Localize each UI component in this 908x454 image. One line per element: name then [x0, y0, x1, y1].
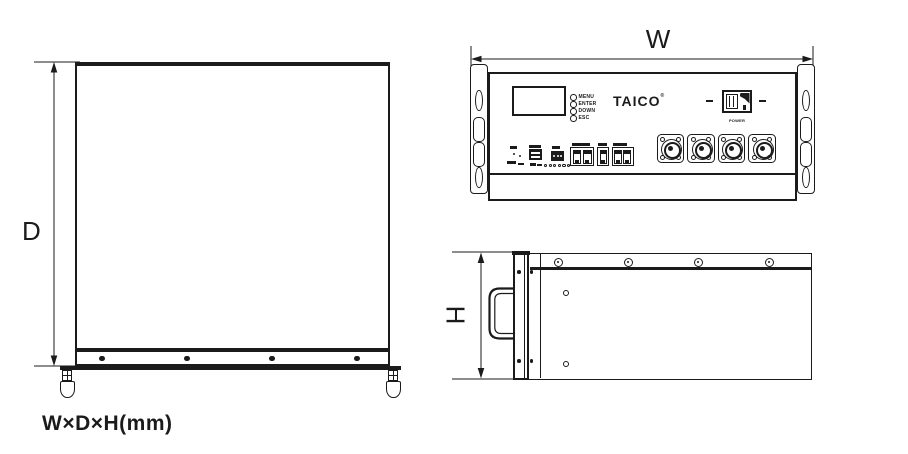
screw-icon	[554, 258, 563, 267]
side-body-outline	[528, 253, 812, 380]
power-connector-positive-1	[657, 134, 685, 164]
front-strip-inner-line	[524, 254, 525, 378]
label-blob	[537, 164, 542, 166]
terminal-pin	[553, 155, 555, 157]
rocker-line	[733, 96, 734, 108]
foot-stem-cross	[388, 375, 398, 376]
vent-hole	[558, 164, 561, 167]
connector-core	[699, 146, 704, 151]
switch-pin-mark	[743, 105, 746, 110]
power-connector-positive-2	[687, 134, 715, 164]
dimension-height-label: H	[442, 306, 468, 325]
body-hole	[563, 361, 570, 368]
strip-screw-dot	[530, 359, 534, 363]
strip-screw-dot	[530, 270, 534, 274]
led-dot-icon	[570, 115, 577, 122]
ear-slot-hole	[475, 167, 483, 188]
base-plate	[60, 366, 401, 370]
label-blob	[510, 146, 517, 149]
led-esc: ESC	[570, 116, 589, 122]
ear-handle-segment	[473, 117, 486, 142]
top-view-enclosure-outline	[75, 62, 390, 350]
foot-stem-line	[393, 370, 394, 381]
power-connector-negative-2	[748, 134, 776, 164]
connector-ring	[695, 142, 712, 159]
screw-icon	[694, 258, 703, 267]
rj45-jack	[583, 150, 592, 164]
power-switch-label: POWER	[727, 119, 747, 123]
indicator-dot	[513, 153, 516, 156]
technical-drawing-canvas: D W×D×H(mm) W MENU	[0, 0, 908, 454]
rj45-jack	[623, 150, 631, 164]
lcd-display	[512, 86, 566, 116]
label-blob	[507, 161, 516, 164]
foot-barrel	[60, 381, 75, 398]
screw-icon	[624, 258, 633, 267]
bracket-screw-dot	[99, 356, 105, 362]
ear-slot-hole	[802, 167, 810, 188]
led-label: DOWN	[579, 109, 596, 114]
rj45-jack	[573, 150, 582, 164]
bracket-screw-dot	[269, 356, 275, 362]
rj45-single-port	[597, 147, 609, 166]
screw-icon	[765, 258, 774, 267]
strip-screw-dot	[517, 359, 521, 363]
brand-registered-mark: ®	[661, 93, 666, 99]
label-blob	[552, 146, 560, 149]
connector-ring	[756, 142, 773, 159]
led-down: DOWN	[570, 109, 595, 115]
led-dot-icon	[570, 94, 577, 101]
terminal-pin	[560, 155, 562, 157]
power-connector-negative-1	[718, 134, 746, 164]
rj45-dual-port	[570, 147, 594, 166]
dimension-formula-label: W×D×H(mm)	[42, 412, 173, 436]
rj45-jack	[614, 150, 622, 164]
strip-screw-dot	[517, 270, 521, 274]
carry-handle-icon	[490, 289, 514, 339]
label-blob	[518, 163, 524, 166]
dip-switch-slot	[531, 152, 540, 154]
switch-side-dash	[759, 100, 766, 103]
label-blob	[572, 143, 590, 146]
brand-logo: TAICO®	[613, 94, 665, 108]
ear-handle-segment	[800, 142, 813, 167]
led-label: ESC	[579, 116, 590, 121]
ear-handle-segment	[800, 117, 813, 142]
led-label: ENTER	[579, 102, 597, 107]
foot-stem-line	[67, 370, 68, 381]
top-view-bottom-bracket	[75, 350, 390, 366]
vent-hole	[549, 164, 552, 167]
bracket-screw-dot	[184, 356, 190, 362]
led-dot-icon	[570, 101, 577, 108]
foot-stem-cross	[62, 375, 72, 376]
terminal-pin	[557, 155, 559, 157]
led-menu: MENU	[570, 95, 594, 101]
label-blob	[613, 143, 627, 146]
dip-switch-slot	[531, 156, 540, 158]
foot-barrel	[386, 381, 401, 398]
bracket-screw-dot	[354, 356, 360, 362]
led-dot-icon	[570, 108, 577, 115]
dimension-width-label: W	[638, 26, 678, 52]
ear-slot-hole	[475, 90, 483, 111]
front-strip	[513, 253, 529, 380]
ear-handle-segment	[473, 142, 486, 167]
ear-slot-hole	[802, 90, 810, 111]
front-face-line	[540, 254, 541, 378]
led-enter: ENTER	[570, 102, 596, 108]
label-blob	[598, 143, 607, 146]
switch-side-dash	[706, 100, 713, 103]
connector-core	[760, 146, 765, 151]
front-panel-lower-divider	[489, 173, 796, 175]
top-band-edge	[530, 267, 811, 270]
vent-hole	[544, 164, 547, 167]
label-blob	[530, 163, 536, 166]
body-hole	[563, 290, 570, 297]
label-blob	[529, 145, 541, 148]
brand-text: TAICO	[613, 93, 661, 109]
rj45-jack	[600, 150, 607, 164]
dimension-depth-label: D	[22, 218, 41, 244]
led-label: MENU	[579, 95, 595, 100]
rocker-line	[729, 96, 730, 108]
rj45-dual-port	[612, 147, 634, 166]
vent-hole	[562, 164, 565, 167]
